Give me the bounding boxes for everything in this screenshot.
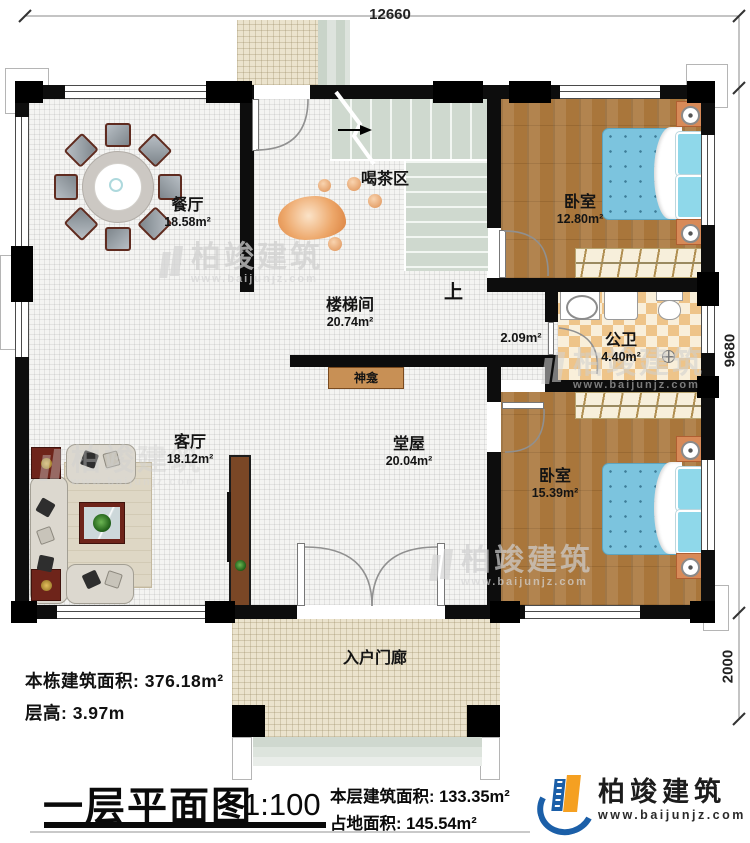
column — [509, 81, 551, 103]
column — [205, 601, 235, 623]
sofa-chaise-top — [66, 444, 136, 484]
column — [697, 272, 719, 306]
bathroom-vanity — [560, 290, 600, 320]
tea-stone — [328, 237, 342, 251]
room-label-bathroom: 公卫 4.40m² — [585, 332, 657, 365]
wall-bedroom-bottom-west — [487, 452, 501, 619]
tea-stone — [318, 179, 331, 192]
column — [11, 246, 33, 302]
column — [206, 81, 252, 103]
room-label-dining: 餐厅 18.58m² — [130, 197, 245, 230]
pillow — [676, 510, 704, 554]
room-label-stairwell: 楼梯间 20.74m² — [300, 297, 400, 330]
bedroom-bottom-door-leaf — [502, 402, 544, 409]
side-table — [31, 447, 61, 479]
window — [57, 605, 205, 619]
washer — [604, 289, 638, 320]
porch-pillar — [467, 705, 500, 737]
porch-step — [253, 747, 482, 757]
entry-door-right-leaf — [437, 543, 445, 606]
brand-name: 柏竣建筑 — [598, 779, 746, 806]
wall-hall-north — [290, 355, 558, 367]
floor-drain — [662, 350, 675, 363]
column — [433, 81, 483, 103]
shrine-label: 神龛 — [354, 371, 378, 385]
wall-bathroom-west — [545, 355, 558, 392]
sofa-chaise-bottom — [66, 564, 134, 604]
brand-logo: 柏竣建筑 www.baijunjz.com — [538, 772, 746, 828]
wardrobe-bedroom-bottom — [575, 392, 702, 419]
window — [560, 85, 660, 99]
column — [687, 81, 715, 103]
stairs-up-label: 上 — [444, 277, 463, 304]
window — [15, 300, 29, 357]
stair-upper-run — [330, 97, 488, 161]
window — [525, 605, 640, 619]
toilet-bowl — [658, 300, 681, 320]
brand-website: www.baijunjz.com — [598, 808, 746, 822]
column — [490, 601, 520, 623]
porch-step — [253, 757, 482, 766]
wall — [701, 353, 715, 460]
nightstand — [676, 219, 702, 245]
column — [11, 601, 37, 623]
pillow — [676, 467, 704, 511]
shrine-cabinet: 神龛 — [328, 367, 404, 389]
room-label-bedroom-bottom: 卧室 15.39m² — [515, 468, 595, 501]
room-label-bedroom-top: 卧室 12.80m² — [540, 194, 620, 227]
window — [701, 300, 715, 353]
toilet — [655, 290, 683, 320]
entry-porch — [232, 619, 500, 737]
bed-bedroom-bottom — [602, 463, 702, 553]
tea-stone — [368, 194, 382, 208]
room-label-living: 客厅 18.12m² — [148, 434, 232, 467]
wall-bathroom-south — [558, 380, 702, 392]
room-label-hall: 堂屋 20.04m² — [368, 436, 450, 469]
porch-step-side — [480, 737, 500, 780]
column — [690, 601, 715, 623]
floor-area-text: 本层建筑面积: 133.35m² — [330, 783, 510, 807]
window — [701, 135, 715, 225]
wall-bathroom-west — [545, 292, 558, 322]
tea-table-rock — [278, 196, 346, 240]
porch-step — [253, 737, 482, 747]
back-door-leaf — [252, 99, 259, 151]
dimension-main-depth: 9680 — [722, 321, 739, 381]
footprint-area-text: 占地面积: 145.54m² — [330, 810, 477, 834]
wall-bedroom-top-west — [487, 85, 501, 228]
dining-chair — [54, 174, 78, 200]
corridor-area-label: 2.09m² — [488, 330, 554, 345]
window — [701, 460, 715, 550]
dining-chair — [105, 123, 131, 147]
dining-table-centerpiece — [109, 178, 123, 192]
window — [65, 85, 210, 99]
porch-pillar — [232, 705, 265, 737]
wall-bedroom-bottom-west — [487, 355, 501, 402]
column — [697, 376, 719, 398]
sheet-scale: 1:100 — [243, 787, 321, 823]
back-steps — [318, 20, 350, 85]
wardrobe-bedroom-top — [575, 248, 702, 278]
nightstand — [676, 101, 702, 127]
column — [15, 81, 43, 103]
back-porch — [237, 20, 318, 85]
dining-chair — [105, 227, 131, 251]
sofa-cushion — [37, 555, 55, 573]
bedroom-top-door-leaf — [499, 230, 506, 278]
side-table — [31, 569, 61, 601]
dimension-top-width: 12660 — [355, 6, 425, 23]
note-building-area: 本栋建筑面积: 376.18m² — [25, 668, 224, 693]
tv-screen — [227, 492, 231, 562]
entry-door-left-leaf — [297, 543, 305, 606]
pillow — [676, 132, 704, 176]
floor-plan: 神龛 餐厅 18.58m² 喝茶区 楼梯间 20.74m² 上 2.09 — [0, 0, 750, 843]
room-label-porch: 入户门廊 — [325, 650, 425, 668]
nightstand — [676, 436, 702, 462]
wall — [15, 357, 29, 619]
wall-bedroom-top-south — [487, 278, 715, 292]
brand-logo-icon — [538, 772, 590, 828]
tv-cabinet — [229, 455, 251, 607]
nightstand — [676, 553, 702, 579]
note-floor-height: 层高: 3.97m — [25, 700, 125, 725]
sink — [566, 295, 598, 320]
plant — [93, 514, 111, 532]
dimension-porch-depth: 2000 — [720, 637, 737, 697]
plant — [235, 560, 246, 571]
room-label-tea-area: 喝茶区 — [340, 171, 430, 189]
pillow — [676, 175, 704, 219]
window — [15, 117, 29, 250]
